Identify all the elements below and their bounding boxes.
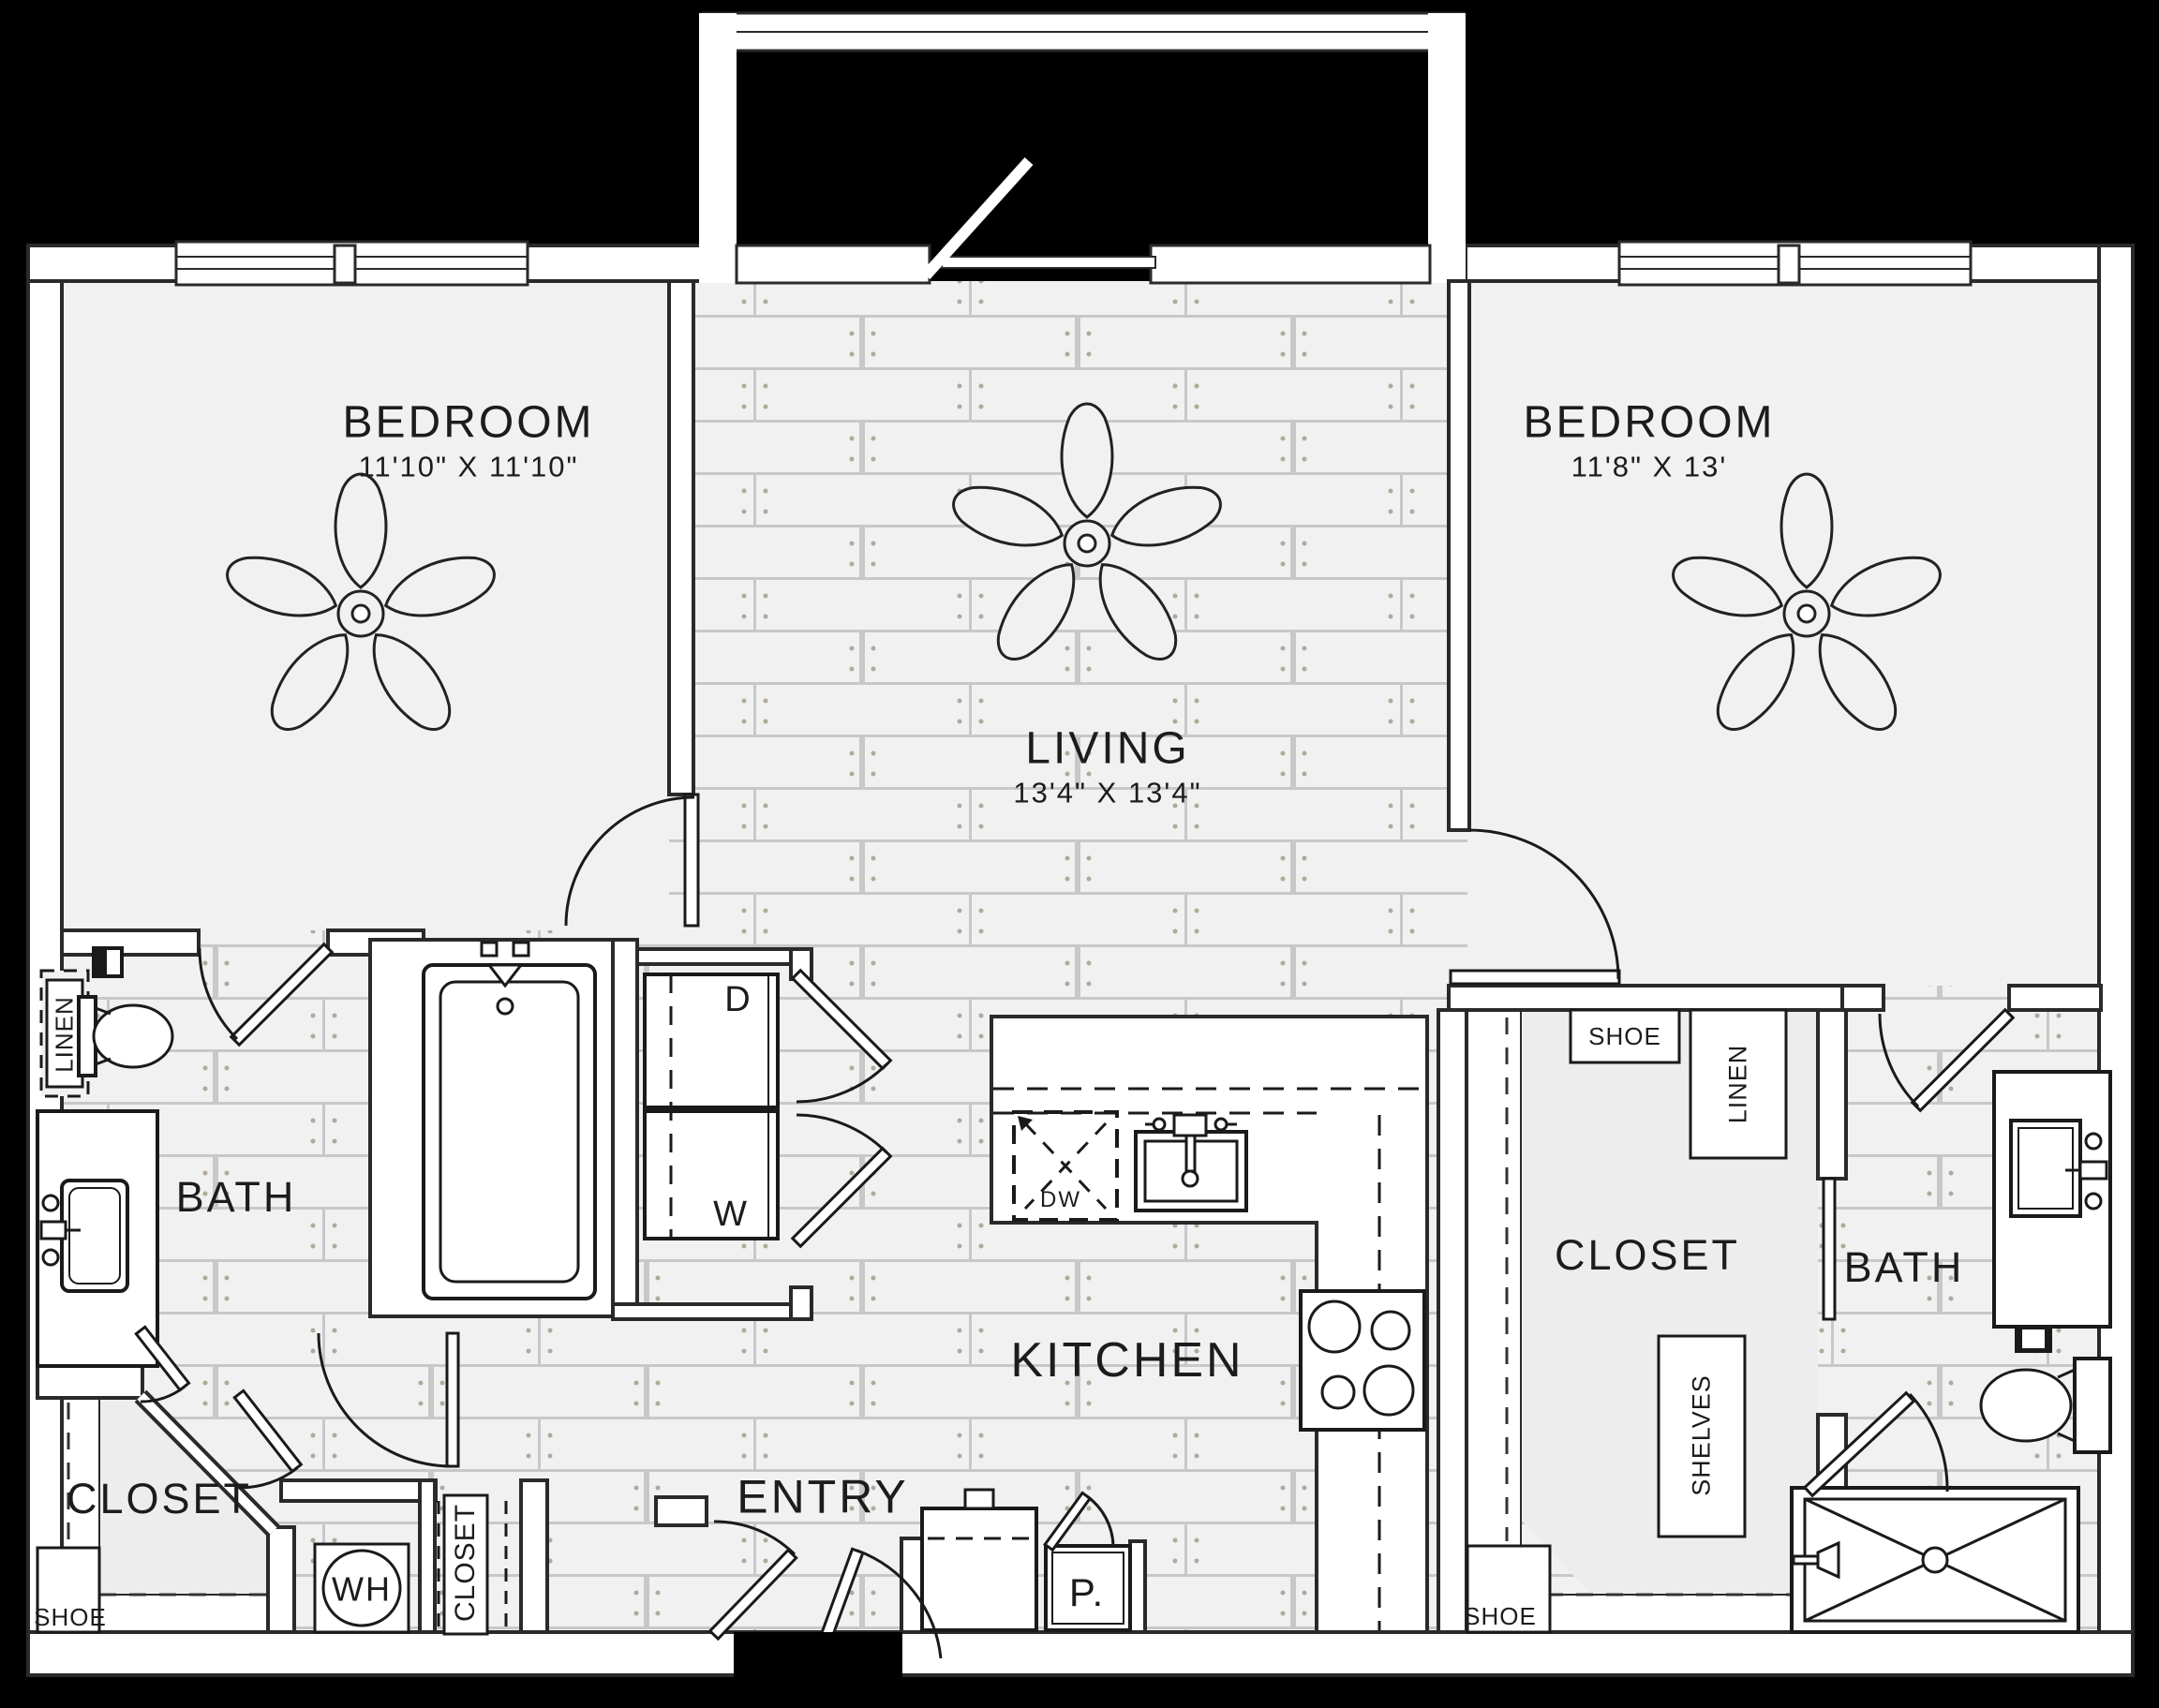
shoe-right-top-label: SHOE bbox=[1588, 1023, 1661, 1051]
bedroom-right-label: BEDROOM 11'8" X 13' bbox=[1523, 397, 1775, 484]
bedroom-right-door-leaf bbox=[1451, 971, 1619, 984]
balcony-wall-left bbox=[699, 13, 737, 283]
bedroom-left-door-leaf bbox=[685, 795, 698, 926]
kitchen-label: KITCHEN bbox=[1010, 1333, 1243, 1389]
refrigerator-icon bbox=[922, 1490, 1036, 1630]
patio-door-panel bbox=[942, 257, 1155, 268]
bedroom-right-floor bbox=[1467, 281, 2099, 986]
balcony-wall-right bbox=[1428, 13, 1466, 283]
floor-plan-drawing bbox=[0, 0, 2159, 1708]
wall-right bbox=[2099, 245, 2133, 1675]
shoe-right-bottom-label: SHOE bbox=[1464, 1603, 1537, 1631]
pantry-label: P. bbox=[1069, 1570, 1105, 1615]
room-name: BEDROOM bbox=[1523, 397, 1775, 449]
dryer-label: D bbox=[724, 980, 752, 1021]
coat-closet-label: CLOSET bbox=[450, 1504, 482, 1622]
dishwasher-label: DW bbox=[1040, 1187, 1081, 1213]
closet-left-label: CLOSET bbox=[67, 1475, 252, 1523]
room-dims: 11'8" X 13' bbox=[1523, 451, 1775, 484]
living-label: LIVING 13'4" X 13'4" bbox=[1013, 723, 1201, 810]
window-bedroom-left bbox=[176, 242, 528, 285]
balcony bbox=[699, 13, 1466, 283]
laundry bbox=[645, 974, 778, 1239]
room-dims: 13'4" X 13'4" bbox=[1013, 777, 1201, 810]
washer-label: W bbox=[713, 1195, 749, 1236]
room-dims: 11'10" X 11'10" bbox=[342, 451, 594, 484]
washer-box bbox=[645, 1111, 778, 1239]
room-name: BEDROOM bbox=[342, 397, 594, 449]
room-name: LIVING bbox=[1013, 723, 1201, 775]
bathtub-icon bbox=[424, 943, 595, 1299]
linen-left-label: LINEN bbox=[51, 996, 80, 1073]
bath-left-label: BATH bbox=[176, 1173, 297, 1222]
vanity-left bbox=[37, 1111, 157, 1366]
entry-threshold bbox=[734, 1632, 902, 1679]
pocket-door bbox=[1824, 1179, 1835, 1319]
stove-icon bbox=[1301, 1291, 1424, 1430]
wall-left bbox=[28, 245, 62, 1675]
entry-label: ENTRY bbox=[737, 1470, 909, 1524]
shoe-left-label: SHOE bbox=[34, 1604, 107, 1632]
water-heater-label: WH bbox=[332, 1569, 392, 1608]
vanity-right bbox=[1994, 1072, 2110, 1327]
closet-right-label: CLOSET bbox=[1555, 1231, 1740, 1280]
shelves-label: SHELVES bbox=[1688, 1374, 1717, 1496]
wall-bottom bbox=[28, 1632, 2133, 1675]
linen-right-label: LINEN bbox=[1724, 1045, 1753, 1124]
hall-door-leaf bbox=[447, 1333, 458, 1466]
bedroom-left-label: BEDROOM 11'10" X 11'10" bbox=[342, 397, 594, 484]
bath-right-label: BATH bbox=[1844, 1243, 1965, 1292]
dryer-box bbox=[645, 974, 778, 1107]
floor-plan: BEDROOM 11'10" X 11'10" LIVING 13'4" X 1… bbox=[0, 0, 2159, 1708]
window-bedroom-right bbox=[1619, 242, 1971, 285]
shower-icon bbox=[1792, 1488, 2078, 1632]
